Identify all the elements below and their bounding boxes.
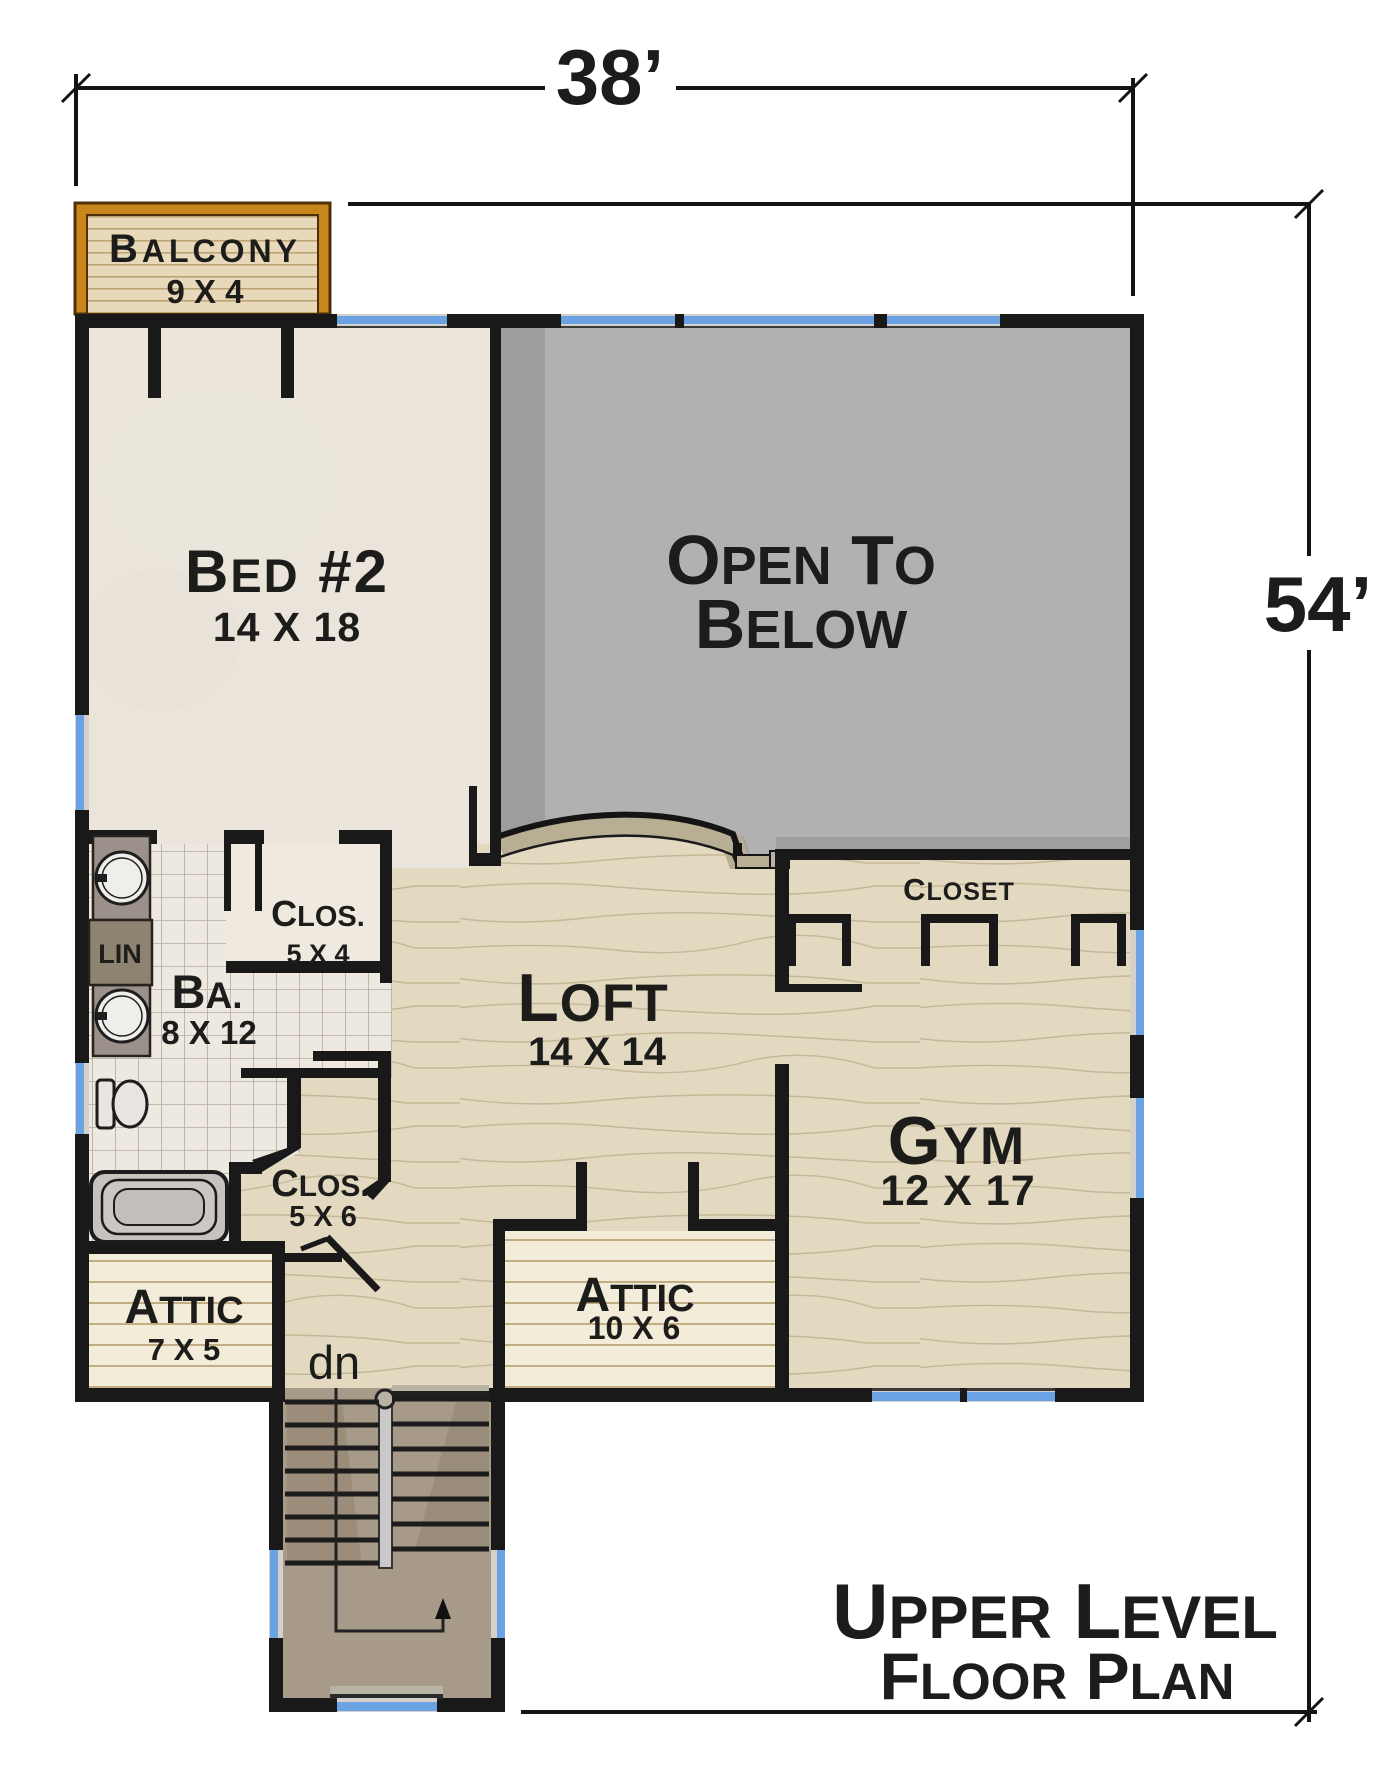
- svg-text:7 X 5: 7 X 5: [148, 1332, 220, 1367]
- svg-text:BED #2: BED #2: [185, 538, 389, 605]
- svg-text:LIN: LIN: [98, 939, 142, 969]
- svg-text:CLOS.: CLOS.: [271, 1163, 368, 1205]
- svg-text:54’: 54’: [1264, 560, 1372, 648]
- svg-text:8 X 12: 8 X 12: [161, 1014, 256, 1051]
- svg-text:10 X 6: 10 X 6: [588, 1310, 681, 1346]
- svg-text:14 X 18: 14 X 18: [213, 604, 361, 650]
- svg-text:5 X 6: 5 X 6: [289, 1201, 357, 1233]
- svg-text:14 X 14: 14 X 14: [528, 1030, 667, 1074]
- svg-text:CLOSET: CLOSET: [903, 872, 1015, 907]
- svg-text:BALCONY: BALCONY: [109, 227, 301, 271]
- svg-text:38’: 38’: [556, 33, 664, 121]
- svg-text:5 X 4: 5 X 4: [286, 939, 349, 969]
- svg-text:9 X 4: 9 X 4: [166, 273, 244, 310]
- svg-text:12 X 17: 12 X 17: [880, 1167, 1035, 1215]
- svg-text:dn: dn: [308, 1336, 360, 1389]
